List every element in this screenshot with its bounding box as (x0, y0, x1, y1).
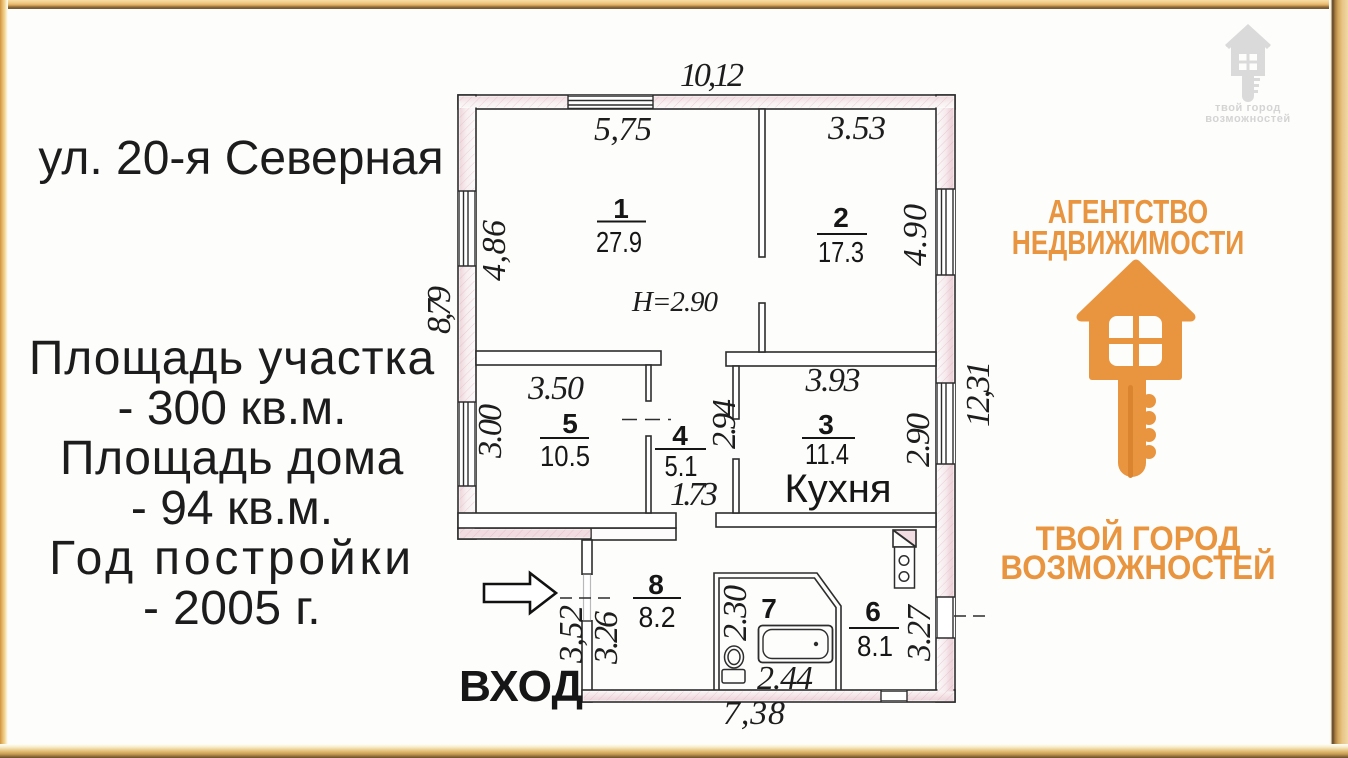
svg-text:10,12: 10,12 (680, 57, 744, 94)
svg-text:3.26: 3.26 (588, 611, 625, 665)
svg-text:17.3: 17.3 (818, 237, 864, 269)
svg-text:4: 4 (672, 420, 688, 451)
svg-text:6: 6 (865, 596, 881, 627)
svg-text:7: 7 (761, 593, 777, 624)
svg-text:H=2.90: H=2.90 (631, 286, 719, 318)
svg-text:2.44: 2.44 (757, 660, 813, 697)
svg-text:3,52: 3,52 (553, 605, 590, 664)
svg-text:5,75: 5,75 (594, 111, 652, 148)
svg-text:2.30: 2.30 (717, 585, 754, 641)
svg-text:12,31: 12,31 (960, 361, 997, 427)
svg-text:3.27: 3.27 (901, 603, 938, 662)
svg-text:ВХОД: ВХОД (459, 662, 583, 711)
svg-text:2.94: 2.94 (706, 399, 743, 449)
svg-text:2: 2 (833, 202, 849, 233)
svg-text:2.90: 2.90 (900, 413, 937, 467)
svg-text:3: 3 (818, 409, 834, 440)
svg-text:1: 1 (613, 193, 629, 224)
svg-text:8.2: 8.2 (639, 602, 676, 634)
svg-text:8.1: 8.1 (857, 631, 893, 663)
svg-text:7,38: 7,38 (723, 695, 785, 732)
svg-text:10.5: 10.5 (540, 441, 590, 473)
svg-text:5: 5 (562, 408, 578, 439)
svg-text:4.90: 4.90 (897, 204, 934, 266)
svg-text:8,79: 8,79 (421, 286, 458, 334)
svg-text:Кухня: Кухня (784, 467, 891, 511)
svg-text:5.1: 5.1 (665, 451, 698, 483)
svg-text:27.9: 27.9 (596, 227, 642, 259)
svg-text:3.00: 3.00 (472, 404, 509, 459)
svg-text:3.93: 3.93 (805, 362, 861, 399)
svg-text:8: 8 (648, 569, 664, 600)
svg-text:4,86: 4,86 (476, 220, 513, 281)
svg-text:3.50: 3.50 (527, 370, 584, 407)
svg-text:3.53: 3.53 (827, 110, 886, 147)
